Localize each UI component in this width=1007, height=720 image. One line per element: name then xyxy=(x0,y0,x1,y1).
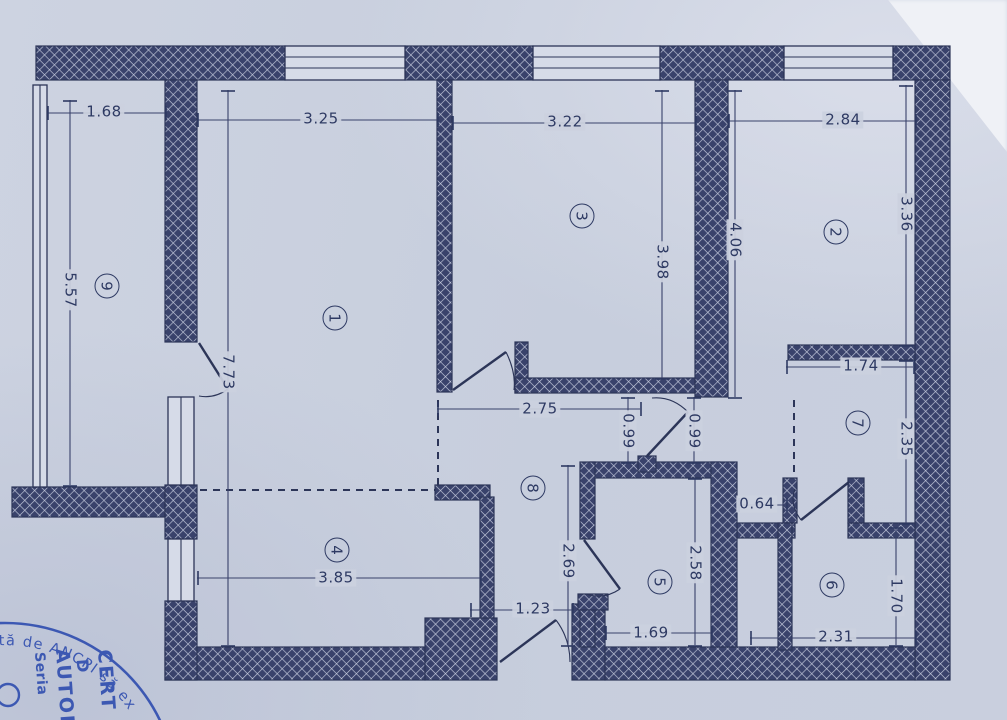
room-number-labels: 1 2 3 4 5 6 7 8 9 xyxy=(0,0,1007,720)
room-label-1: 1 xyxy=(323,306,348,331)
room-label-5: 5 xyxy=(648,570,673,595)
room-label-4: 4 xyxy=(325,538,350,563)
room-label-3: 3 xyxy=(570,204,595,229)
room-label-2: 2 xyxy=(824,220,849,245)
floor-plan-photo: că autorizată de ANCPI să ex CERT D AUTO… xyxy=(0,0,1007,720)
room-label-7: 7 xyxy=(846,411,871,436)
floor-plan-drawing: că autorizată de ANCPI să ex CERT D AUTO… xyxy=(0,0,1007,720)
room-label-9: 9 xyxy=(95,274,120,299)
room-label-6: 6 xyxy=(820,573,845,598)
room-label-8: 8 xyxy=(521,476,546,501)
